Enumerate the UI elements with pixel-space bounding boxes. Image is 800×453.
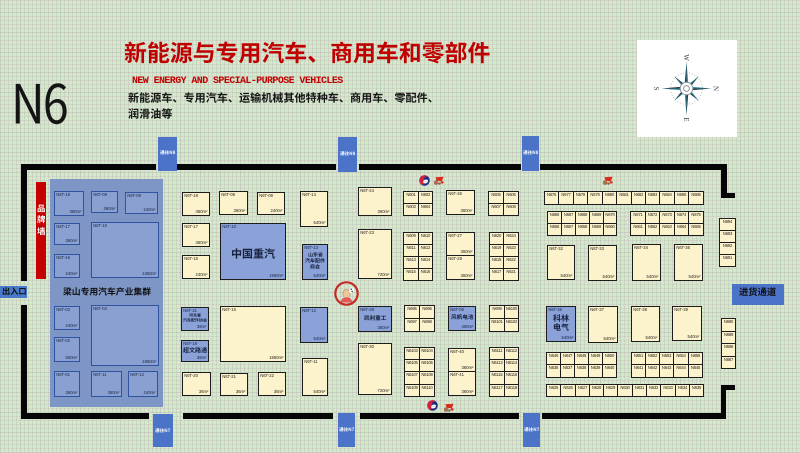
svg-text:E: E [682,117,690,121]
svg-text:S: S [652,87,660,91]
svg-text:N: N [712,86,720,91]
svg-text:W: W [682,54,690,61]
